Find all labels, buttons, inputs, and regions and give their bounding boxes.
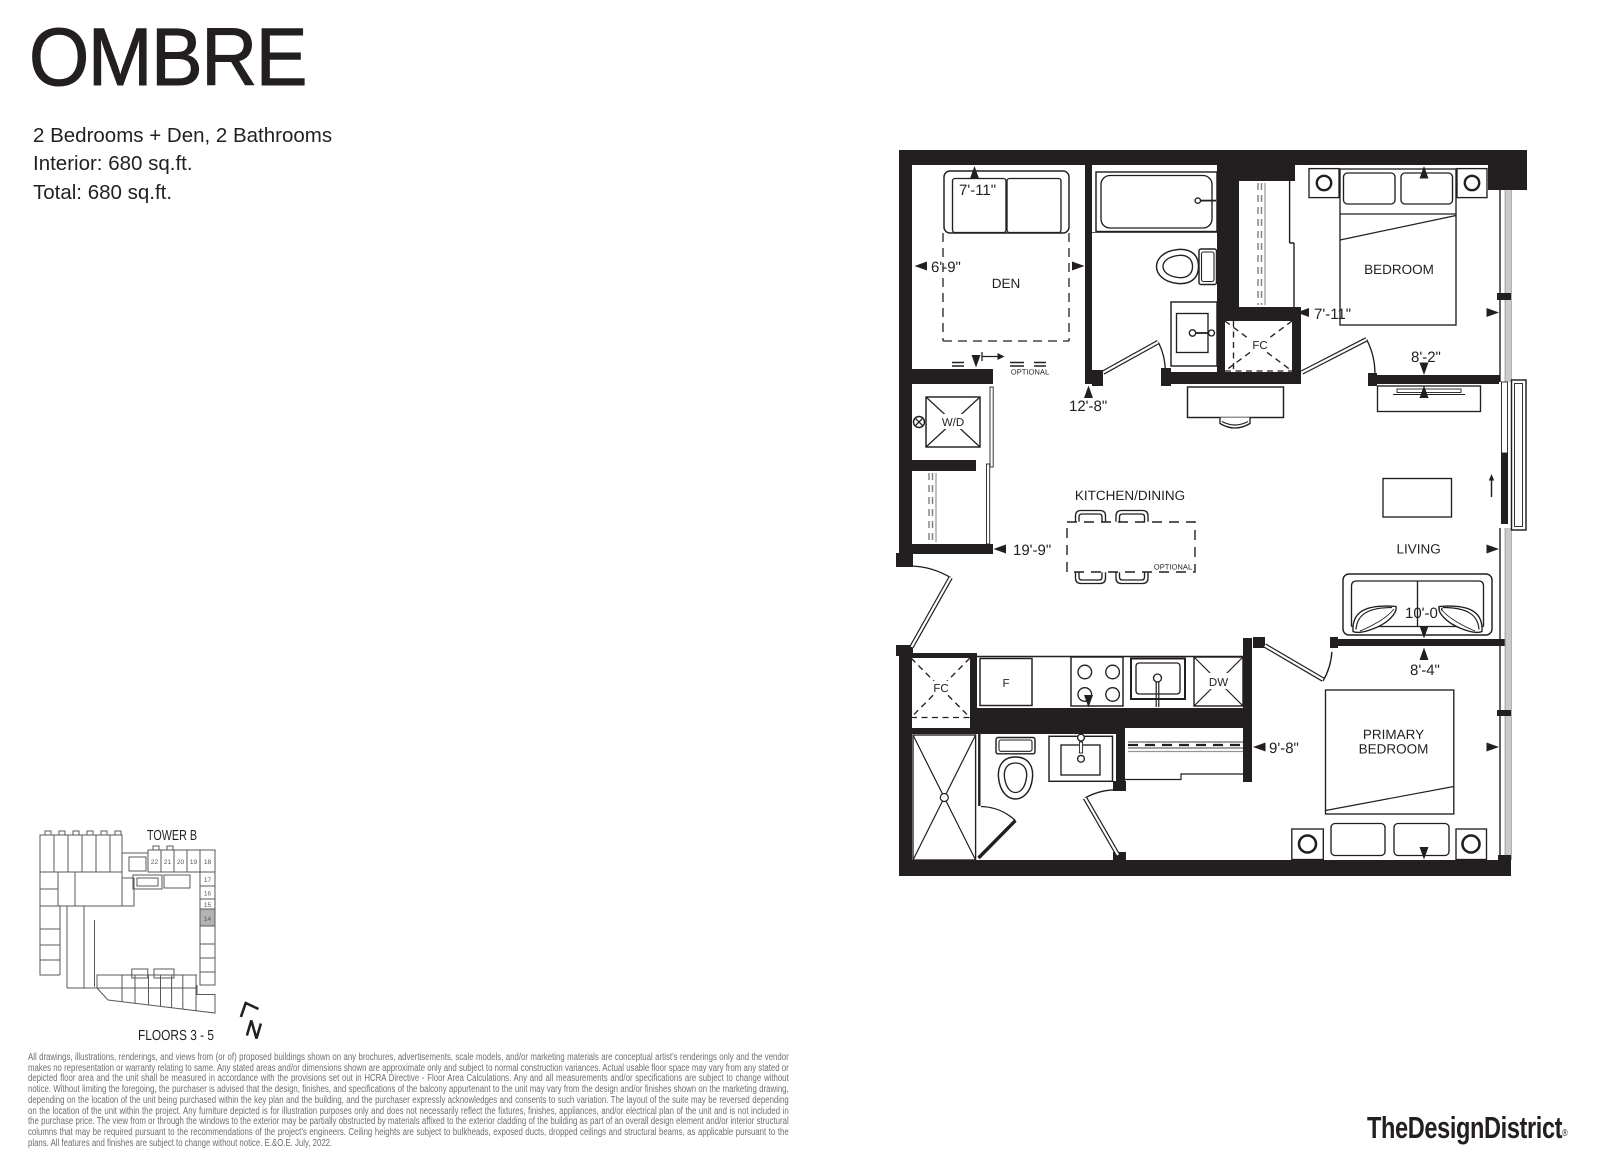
svg-text:17: 17 [204,877,212,884]
svg-text:FC: FC [933,683,948,695]
svg-text:19: 19 [190,859,198,866]
svg-text:FC: FC [1252,340,1267,352]
svg-text:22: 22 [151,859,159,866]
svg-text:W/D: W/D [942,417,964,429]
svg-text:9'-8": 9'-8" [1269,740,1299,757]
svg-text:20: 20 [177,859,185,866]
svg-text:16: 16 [204,891,212,898]
svg-text:OPTIONAL: OPTIONAL [1011,368,1049,377]
svg-text:OPTIONAL: OPTIONAL [1154,563,1192,572]
svg-text:7'-11": 7'-11" [959,182,996,199]
svg-text:DW: DW [1209,677,1228,689]
svg-text:7'-11": 7'-11" [1314,306,1351,323]
svg-text:KITCHEN/DINING: KITCHEN/DINING [1075,488,1185,503]
svg-text:PRIMARY: PRIMARY [1363,727,1424,742]
svg-text:14: 14 [204,916,212,923]
svg-text:TOWER B: TOWER B [147,828,197,844]
svg-text:BEDROOM: BEDROOM [1359,742,1429,757]
svg-text:FLOORS 3 - 5: FLOORS 3 - 5 [138,1028,214,1044]
svg-text:8'-4": 8'-4" [1410,662,1440,679]
svg-text:8'-2": 8'-2" [1411,349,1441,366]
svg-text:BEDROOM: BEDROOM [1364,262,1434,277]
svg-text:15: 15 [204,902,212,909]
svg-text:LIVING: LIVING [1396,542,1440,557]
svg-text:10'-0": 10'-0" [1405,605,1443,622]
svg-text:F: F [1002,678,1009,690]
svg-text:19'-9": 19'-9" [1013,542,1051,559]
svg-text:DEN: DEN [992,276,1021,291]
svg-text:6'-9": 6'-9" [931,259,961,276]
svg-text:21: 21 [164,859,172,866]
svg-text:18: 18 [204,859,212,866]
svg-text:12'-8": 12'-8" [1069,398,1107,415]
